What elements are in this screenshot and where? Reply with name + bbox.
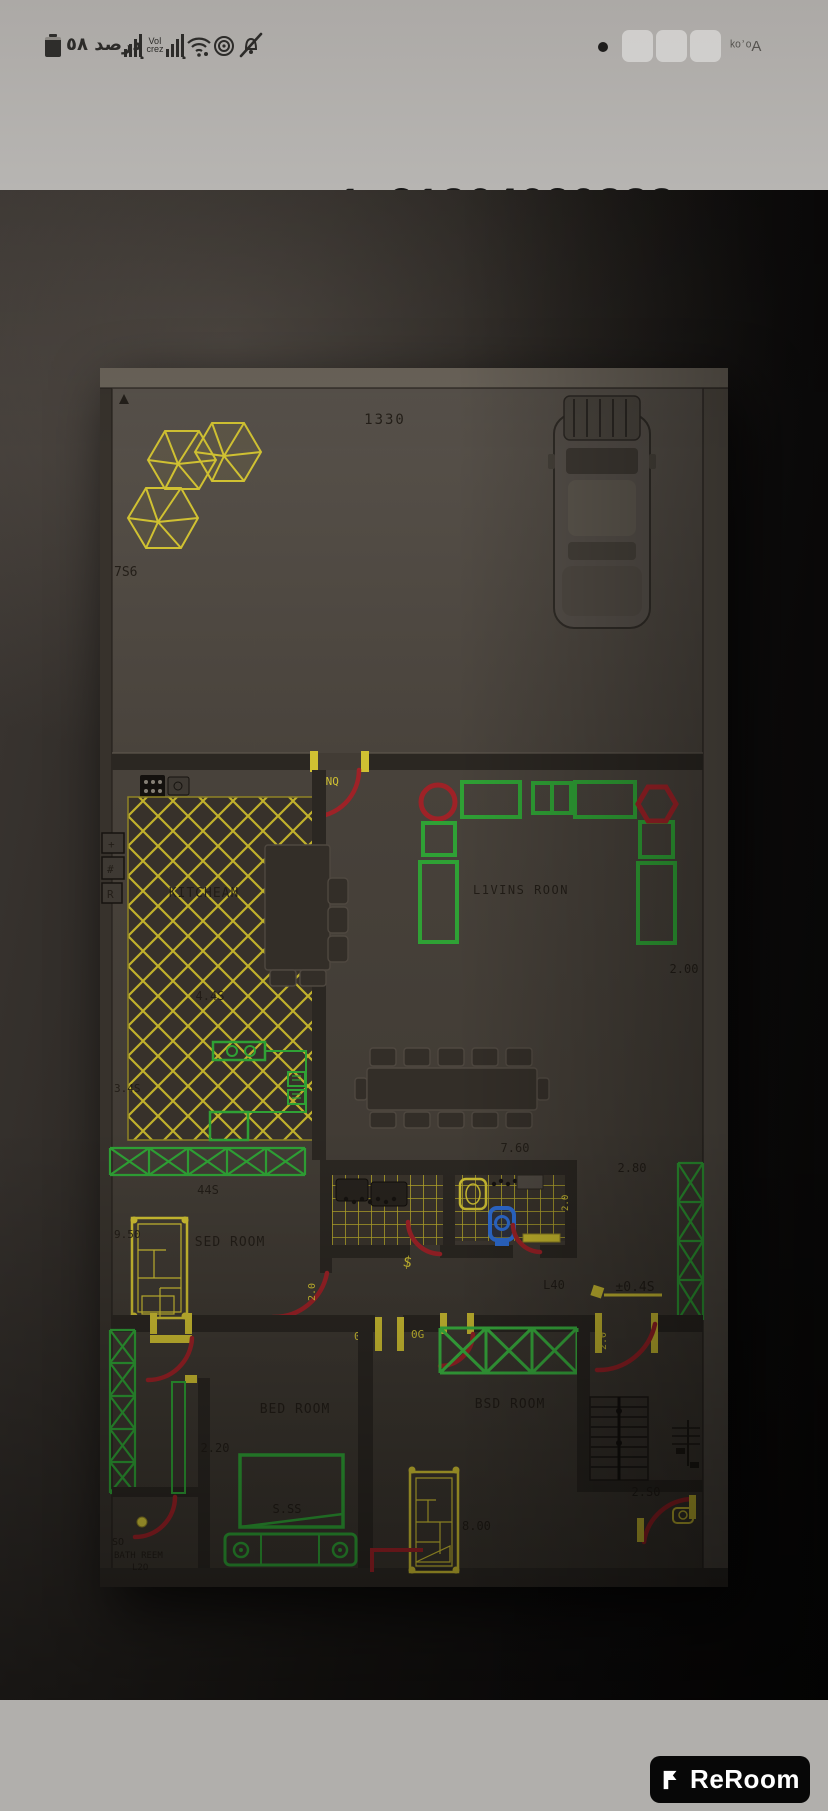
notification-badge — [622, 30, 653, 62]
room-label: BSD ROOM — [475, 1397, 546, 1412]
car-icon — [548, 396, 656, 628]
door-dim: 2.0 — [598, 1332, 609, 1350]
door-dim: 2.0 — [561, 1195, 571, 1211]
walls — [112, 751, 703, 772]
door-knob — [137, 1517, 147, 1527]
svg-text:#: # — [107, 863, 114, 876]
corner-label: SO — [112, 1537, 124, 1548]
status-bar: درصد ٥٨ Voاcrez ᵏᵒʾᵒA — [0, 0, 828, 85]
notification-dot — [598, 42, 608, 52]
carrier-label: Voاcrez — [143, 37, 167, 53]
room-label: L1VINS ROON — [473, 883, 569, 897]
document-viewer[interactable]: 1330 7S6 INQ + # — [0, 190, 828, 1700]
reroom-watermark: ReRoom — [650, 1756, 810, 1803]
dim-label: 7S6 — [114, 565, 137, 580]
door-dim: 0G — [411, 1328, 424, 1341]
dim-label: 2.00 — [670, 962, 699, 976]
dim-label: 2.80 — [618, 1161, 647, 1175]
app-header: درصد ٥٨ Voاcrez ᵏᵒʾᵒA 1_21864620888 خوان… — [0, 0, 828, 190]
dim-label: 44S — [197, 1183, 219, 1197]
corner-label: BATH REEM — [114, 1551, 163, 1561]
mute-icon — [239, 32, 263, 58]
appliance-icon — [168, 777, 189, 795]
dim-label: 7.60 — [501, 1141, 530, 1155]
cistern-icon — [517, 1175, 543, 1189]
signal-icon — [124, 33, 144, 59]
room-label: SED ROOM — [195, 1235, 266, 1250]
notification-badge — [690, 30, 721, 62]
corner-label: L2O — [132, 1563, 148, 1573]
signal-icon-2 — [166, 33, 186, 59]
room-label: BED ROOM — [260, 1402, 331, 1417]
status-right-label: ᵏᵒʾᵒA — [730, 38, 761, 55]
door-dim: 2.0 — [307, 1283, 318, 1301]
dim-label: 2.S0 — [632, 1485, 661, 1499]
door-leaf — [150, 1335, 192, 1343]
room-label: KITCHEAN — [169, 886, 240, 901]
kitchen-island — [265, 845, 330, 970]
dim-label: 2.20 — [201, 1441, 230, 1455]
dim-label: 9.50 — [114, 1228, 141, 1241]
dim-label: 1330 — [364, 412, 406, 428]
svg-text:R: R — [107, 888, 114, 901]
bench-icon — [523, 1234, 560, 1242]
watermark-label: ReRoom — [690, 1764, 800, 1795]
svg-text:+: + — [108, 838, 115, 851]
dim-label: 4.4S — [196, 989, 225, 1003]
dim-label: 3.4S — [114, 1082, 141, 1095]
carrier-label-bottom: crez — [146, 44, 163, 54]
notification-badge — [656, 30, 687, 62]
dim-label: 8.00 — [462, 1519, 491, 1533]
data-saver-icon — [212, 34, 236, 58]
reroom-logo-icon — [660, 1769, 682, 1791]
staircase-icon — [590, 1397, 648, 1480]
bed-label: S.SS — [273, 1502, 302, 1516]
phone-screen: درصد ٥٨ Voاcrez ᵏᵒʾᵒA 1_21864620888 خوان… — [0, 0, 828, 1811]
kitchen-area: + # R KITCHEAN 4.4S — [102, 770, 348, 1197]
stove-icon — [140, 775, 165, 798]
battery-icon — [45, 37, 61, 57]
toilet-icon — [490, 1208, 514, 1246]
dim-label: L40 — [543, 1278, 565, 1292]
dim-label: ±0.4S — [615, 1280, 654, 1295]
vanity-icon — [371, 1182, 407, 1206]
wifi-icon — [186, 32, 212, 58]
floor-plan-image: 1330 7S6 INQ + # — [98, 366, 730, 1589]
pdf-toolbar: 1_21864620888 خوان PDF — [0, 85, 828, 190]
